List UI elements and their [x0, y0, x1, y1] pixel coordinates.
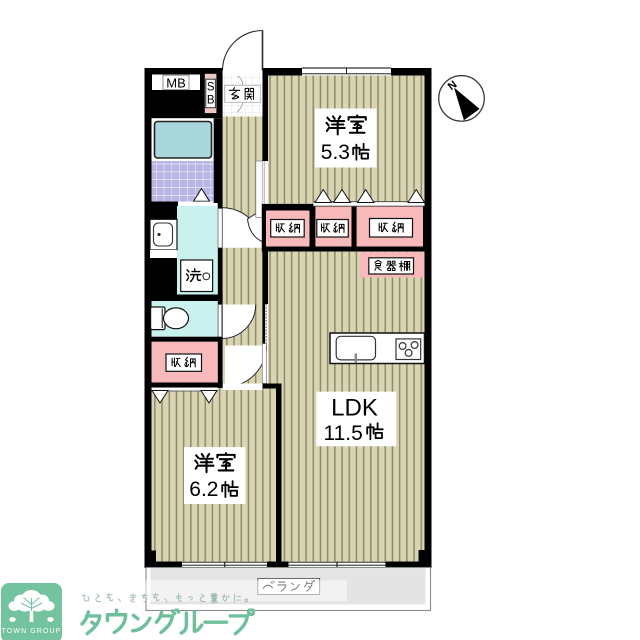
svg-text:LDK: LDK	[331, 394, 378, 421]
svg-text:MB: MB	[166, 75, 186, 90]
svg-text:11.5: 11.5	[324, 422, 363, 445]
svg-text:5.3: 5.3	[321, 141, 350, 164]
svg-text:B: B	[207, 95, 215, 107]
svg-text:S: S	[207, 82, 215, 94]
svg-text:TOWN GROUP: TOWN GROUP	[2, 628, 62, 635]
svg-text:6.2: 6.2	[189, 478, 218, 501]
